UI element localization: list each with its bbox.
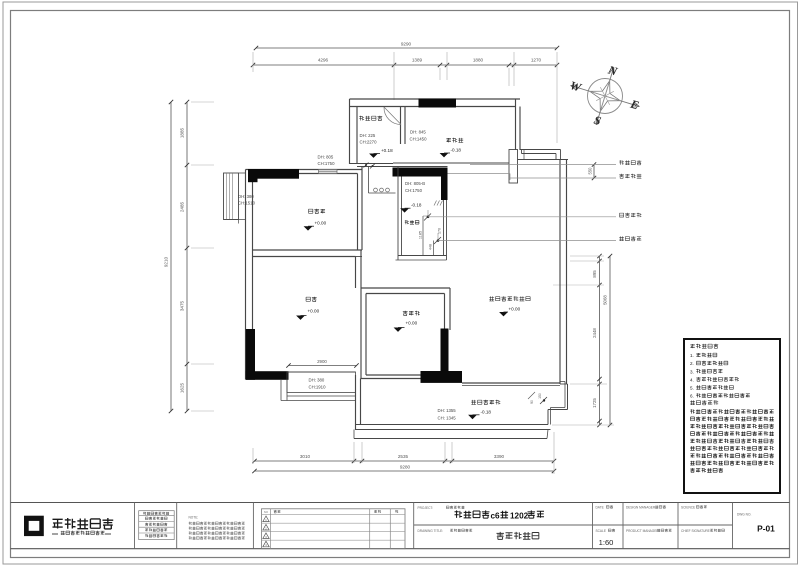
svg-text:-0.18: -0.18: [411, 203, 422, 208]
svg-text:DH: 225: DH: 225: [360, 133, 376, 138]
svg-text:DH: 845: DH: 845: [410, 130, 426, 135]
svg-text:1:60: 1:60: [599, 538, 614, 547]
svg-text:SCALE: SCALE: [596, 529, 606, 533]
svg-text:DESIGN MANAGER: DESIGN MANAGER: [626, 506, 656, 510]
svg-text:DH: 805: DH: 805: [318, 155, 334, 160]
svg-text:1389: 1389: [412, 58, 423, 63]
svg-text:DH: 380: DH: 380: [238, 194, 254, 199]
svg-text:90: 90: [530, 400, 534, 404]
svg-text:CH:1750: CH:1750: [405, 188, 423, 193]
svg-text:+0.18: +0.18: [381, 148, 393, 153]
svg-text:-0.18: -0.18: [481, 410, 492, 415]
svg-text:CH:1450: CH:1450: [410, 137, 428, 142]
svg-text:DH: 380: DH: 380: [309, 378, 325, 383]
svg-text:1725: 1725: [592, 398, 597, 408]
svg-text:2448: 2448: [592, 328, 597, 338]
svg-text:1.: 1.: [690, 353, 694, 358]
svg-text:CHIEF SIGNATURE: CHIEF SIGNATURE: [681, 529, 710, 533]
svg-text:2.: 2.: [690, 361, 694, 366]
svg-text:SCIENCE: SCIENCE: [681, 506, 695, 510]
svg-text:PRODUCT MANAGER: PRODUCT MANAGER: [626, 529, 659, 533]
svg-text:9210: 9210: [164, 256, 169, 267]
svg-text:1880: 1880: [473, 58, 484, 63]
svg-text:2535: 2535: [398, 454, 409, 459]
svg-text:PROJECT:: PROJECT:: [418, 506, 434, 510]
svg-text:5.: 5.: [690, 386, 694, 391]
svg-text:DATE: DATE: [596, 506, 604, 510]
svg-text:1202: 1202: [510, 512, 529, 521]
svg-text:150: 150: [538, 393, 542, 399]
svg-text:3.: 3.: [690, 369, 694, 374]
svg-text:3010: 3010: [300, 454, 311, 459]
svg-text:NOTE:: NOTE:: [189, 516, 199, 520]
svg-text:+0.00: +0.00: [509, 307, 521, 312]
svg-text:5068: 5068: [603, 295, 608, 305]
svg-text:895: 895: [592, 270, 597, 278]
svg-text:1270: 1270: [531, 58, 542, 63]
svg-text:DWG NO.: DWG NO.: [737, 513, 751, 517]
svg-text:CH:1510: CH:1510: [238, 201, 256, 206]
svg-text:2900: 2900: [317, 359, 327, 364]
svg-text:9280: 9280: [400, 465, 411, 470]
svg-text:DH: 805-B: DH: 805-B: [405, 181, 425, 186]
svg-text:2485: 2485: [180, 201, 185, 212]
svg-text:550: 550: [588, 167, 593, 175]
svg-text:1185: 1185: [419, 231, 423, 239]
svg-text:448: 448: [429, 244, 433, 250]
svg-text:1885: 1885: [180, 127, 185, 138]
svg-text:170: 170: [438, 228, 442, 234]
svg-text:CH:2270: CH:2270: [360, 140, 378, 145]
svg-text:+0.00: +0.00: [406, 321, 418, 326]
svg-text:CH: 1345: CH: 1345: [438, 416, 457, 421]
svg-text:6.: 6.: [690, 394, 694, 399]
svg-text:4.: 4.: [690, 377, 694, 382]
svg-text:DH: 1355: DH: 1355: [438, 408, 457, 413]
svg-text:P-01: P-01: [757, 524, 775, 534]
svg-text:9290: 9290: [401, 42, 412, 47]
svg-text:CH:1750: CH:1750: [318, 161, 336, 166]
svg-text:CH:1910: CH:1910: [309, 385, 327, 390]
svg-text:3390: 3390: [494, 454, 505, 459]
svg-text:1625: 1625: [180, 382, 185, 393]
svg-text:+0.00: +0.00: [308, 309, 320, 314]
svg-text:DRAWING TITLE:: DRAWING TITLE:: [418, 529, 444, 533]
svg-text:-0.18: -0.18: [451, 148, 462, 153]
svg-text:c6: c6: [491, 512, 501, 521]
svg-text:+0.00: +0.00: [315, 221, 327, 226]
svg-text:4296: 4296: [318, 58, 329, 63]
svg-text:3475: 3475: [180, 300, 185, 311]
